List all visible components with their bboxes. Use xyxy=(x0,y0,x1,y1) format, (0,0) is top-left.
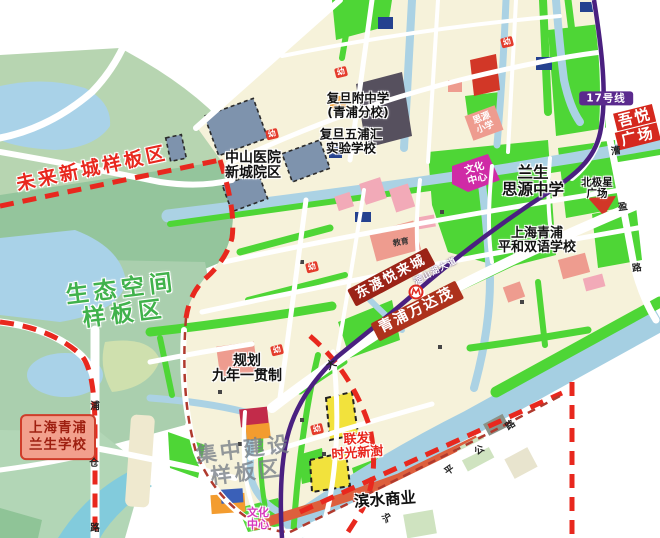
region-label-eco-space: 生态空间 样板区 xyxy=(64,271,181,334)
label-lansheng-siyuan: 兰生 思源中学 xyxy=(502,164,564,197)
map-labels: 集中建设 样板区 未来新城样板区 生态空间 样板区 中山医院 新城院区 复旦附中… xyxy=(0,0,660,538)
road-label-caoying-char: 漕 xyxy=(611,146,622,157)
kindergarten-tag: 幼 xyxy=(334,66,348,78)
lansheng-school-line1: 上海青浦 xyxy=(29,420,87,437)
label-siyuan-primary: 思源 小学 xyxy=(472,111,496,136)
zhongshan-line2: 新城院区 xyxy=(225,166,281,181)
lansheng-school-line2: 兰生学校 xyxy=(29,437,87,454)
label-binshui-commercial: 滨水商业 xyxy=(353,489,416,510)
pinghe-line1: 上海青浦 xyxy=(498,227,576,241)
road-label-pucang-char: 路 xyxy=(90,524,100,534)
label-lianfa: 联发 时光新澍 xyxy=(330,431,384,463)
label-pinghe-school: 上海青浦 平和双语学校 xyxy=(498,227,576,255)
fudan-wph-line2: 实验学校 xyxy=(320,141,383,155)
label-fudan-affiliated: 复旦附中学 (青浦分校) xyxy=(327,92,390,119)
zhongshan-line1: 中山医院 xyxy=(225,151,281,166)
road-label-huqingping-char: 平 xyxy=(443,464,457,478)
road-label-huqingping-char: 公 xyxy=(473,444,487,458)
label-lansheng-school: 上海青浦 兰生学校 xyxy=(20,414,96,460)
region-label-concentrated: 集中建设 样板区 xyxy=(195,433,296,490)
label-wuyue-plaza: 吾悦 广场 xyxy=(613,104,660,150)
beijixing-line2: 广场 xyxy=(581,189,613,200)
label-culture-center-south: 文化 中心 xyxy=(247,507,269,531)
road-label-pucang-char: 浦 xyxy=(90,402,100,412)
region-label-future-city: 未来新城样板区 xyxy=(15,143,170,195)
line17-badge: 17号线 xyxy=(579,87,633,104)
culture-s-line2: 中心 xyxy=(247,519,269,531)
road-label-huqingping-char: 路 xyxy=(504,419,518,433)
road-label-caoying-char: 盈 xyxy=(618,202,629,213)
label-zhongshan-hospital: 中山医院 新城院区 xyxy=(225,151,281,181)
fudan-wph-line1: 复旦五浦汇 xyxy=(320,128,383,142)
fudan-fz-line1: 复旦附中学 xyxy=(327,92,390,106)
road-label-huqingping-char: 沪 xyxy=(381,512,395,526)
lansheng-school-box: 上海青浦 兰生学校 xyxy=(20,414,96,460)
road-label-caoying-char: 路 xyxy=(632,263,643,274)
label-beijixing-plaza: 北极星 广场 xyxy=(581,178,613,201)
planned-line2: 九年一贯制 xyxy=(212,369,282,384)
lansheng-siyuan-line2: 思源中学 xyxy=(502,181,564,198)
road-label-avenue-char: 大 xyxy=(325,359,339,373)
line17-badge-text: 17号线 xyxy=(579,91,633,105)
label-culture-center-north: 文化 中心 xyxy=(463,161,488,188)
kindergarten-tag: 幼 xyxy=(265,128,279,140)
kindergarten-tag: 幼 xyxy=(305,261,319,273)
road-label-pucang-char: 仓 xyxy=(89,459,99,469)
label-planned-school: 规划 九年一贯制 xyxy=(212,354,282,384)
kindergarten-tag: 幼 xyxy=(500,36,514,48)
planned-line1: 规划 xyxy=(212,354,282,369)
fudan-fz-line2: (青浦分校) xyxy=(327,105,390,119)
planning-map: 集中建设 样板区 未来新城样板区 生态空间 样板区 中山医院 新城院区 复旦附中… xyxy=(0,0,660,538)
label-fudan-wupuhui: 复旦五浦汇 实验学校 xyxy=(320,128,383,155)
pinghe-line2: 平和双语学校 xyxy=(498,241,576,255)
kindergarten-tag: 幼 xyxy=(310,423,324,435)
lansheng-siyuan-line1: 兰生 xyxy=(502,164,564,181)
lianfa-line2: 时光新澍 xyxy=(331,445,384,463)
education-tag: 教育 xyxy=(392,237,409,248)
